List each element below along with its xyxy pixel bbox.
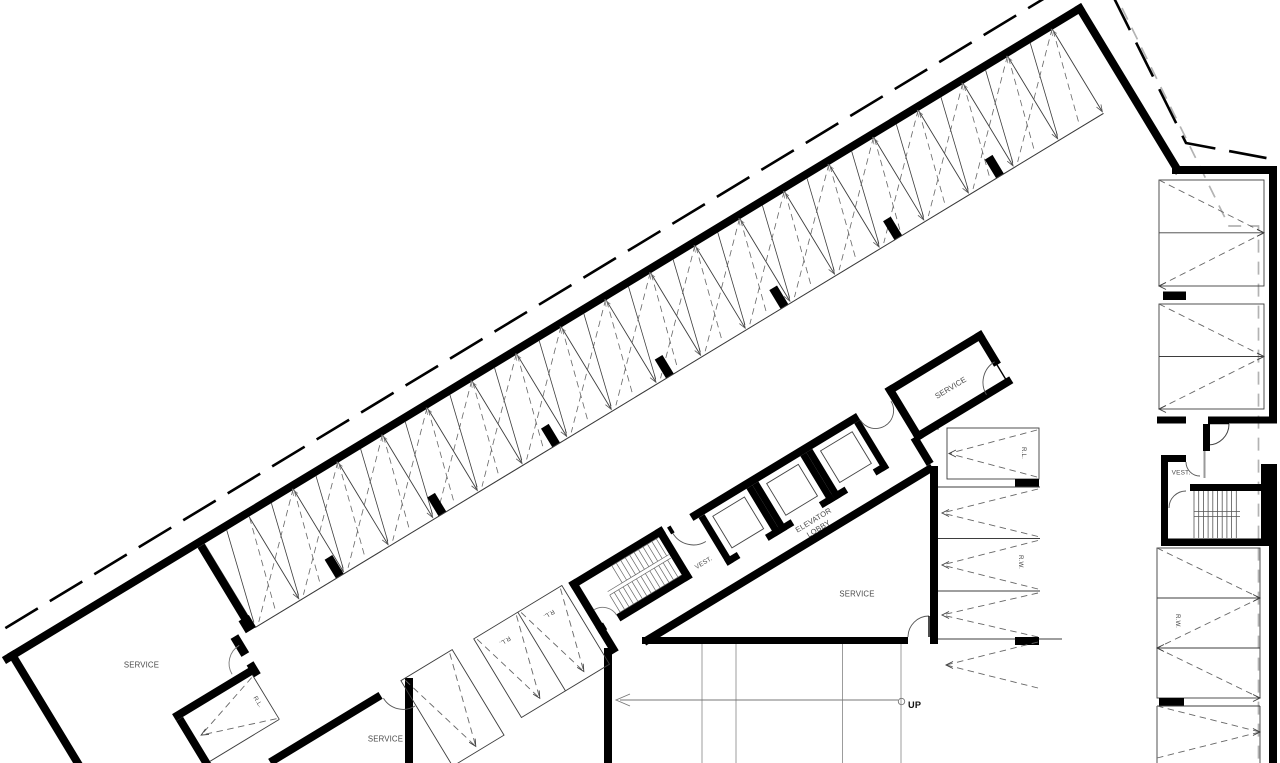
svg-text:R.W.: R.W. <box>1174 614 1181 628</box>
svg-text:SERVICE: SERVICE <box>124 661 159 670</box>
svg-text:UP: UP <box>908 700 921 710</box>
svg-text:SERVICE: SERVICE <box>368 735 403 744</box>
svg-text:R.W.: R.W. <box>1017 555 1024 569</box>
svg-text:SERVICE: SERVICE <box>839 590 874 599</box>
svg-text:R.L.: R.L. <box>1020 447 1027 459</box>
svg-text:VEST.: VEST. <box>1172 470 1191 477</box>
